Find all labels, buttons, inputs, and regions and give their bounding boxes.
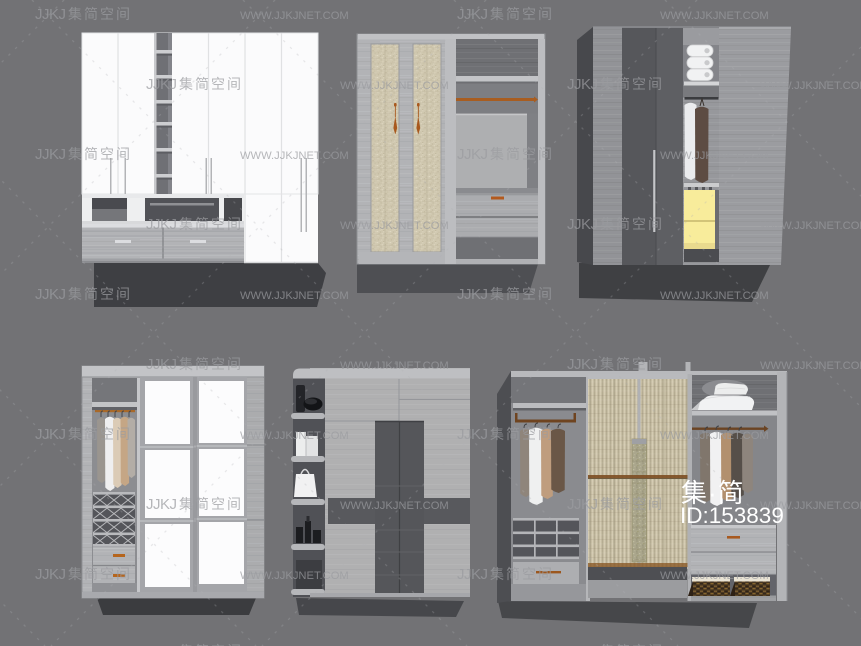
- svg-text:WWW.JJKJNET.COM: WWW.JJKJNET.COM: [340, 220, 449, 232]
- svg-text:JJKJ: JJKJ: [146, 216, 177, 233]
- svg-text:集简空间: 集简空间: [68, 566, 132, 582]
- svg-text:WWW.JJKJNET.COM: WWW.JJKJNET.COM: [240, 10, 349, 22]
- svg-text:集简空间: 集简空间: [490, 426, 554, 442]
- svg-text:JJKJ: JJKJ: [457, 286, 488, 303]
- svg-text:集简空间: 集简空间: [68, 286, 132, 302]
- svg-text:JJKJ: JJKJ: [457, 426, 488, 443]
- svg-text:WWW.JJKJNET.COM: WWW.JJKJNET.COM: [340, 500, 449, 512]
- svg-text:集简空间: 集简空间: [490, 6, 554, 22]
- svg-text:WWW.JJKJNET.COM: WWW.JJKJNET.COM: [660, 570, 769, 582]
- svg-text:JJKJ: JJKJ: [567, 76, 598, 93]
- svg-text:WWW.JJKJNET.COM: WWW.JJKJNET.COM: [240, 290, 349, 302]
- svg-text:ID:153839: ID:153839: [680, 503, 784, 528]
- svg-text:WWW.JJKJNET.COM: WWW.JJKJNET.COM: [660, 430, 769, 442]
- svg-text:JJKJ: JJKJ: [457, 566, 488, 583]
- svg-text:集简空间: 集简空间: [490, 566, 554, 582]
- svg-text:JJKJ: JJKJ: [35, 426, 66, 443]
- svg-text:集简空间: 集简空间: [490, 286, 554, 302]
- svg-text:JJKJ: JJKJ: [457, 6, 488, 23]
- svg-text:WWW.JJKJNET.COM: WWW.JJKJNET.COM: [240, 150, 349, 162]
- svg-text:WWW.JJKJNET.COM: WWW.JJKJNET.COM: [760, 220, 861, 232]
- svg-text:JJKJ: JJKJ: [35, 146, 66, 163]
- svg-text:集简空间: 集简空间: [179, 356, 243, 372]
- svg-text:JJKJ: JJKJ: [567, 216, 598, 233]
- svg-text:WWW.JJKJNET.COM: WWW.JJKJNET.COM: [760, 80, 861, 92]
- svg-text:集简空间: 集简空间: [68, 146, 132, 162]
- svg-text:集简空间: 集简空间: [68, 6, 132, 22]
- svg-text:JJKJ: JJKJ: [457, 146, 488, 163]
- svg-text:WWW.JJKJNET.COM: WWW.JJKJNET.COM: [760, 360, 861, 372]
- svg-text:集简空间: 集简空间: [179, 496, 243, 512]
- svg-text:JJKJ: JJKJ: [35, 566, 66, 583]
- svg-text:WWW.JJKJNET.COM: WWW.JJKJNET.COM: [340, 80, 449, 92]
- svg-text:WWW.JJKJNET.COM: WWW.JJKJNET.COM: [240, 430, 349, 442]
- svg-text:集简空间: 集简空间: [179, 76, 243, 92]
- svg-text:JJKJ: JJKJ: [146, 356, 177, 373]
- svg-text:JJKJ: JJKJ: [567, 496, 598, 513]
- svg-text:JJKJ: JJKJ: [567, 356, 598, 373]
- svg-text:集简空间: 集简空间: [600, 496, 664, 512]
- svg-text:集简空间: 集简空间: [600, 356, 664, 372]
- svg-text:JJKJ: JJKJ: [35, 286, 66, 303]
- svg-text:WWW.JJKJNET.COM: WWW.JJKJNET.COM: [660, 10, 769, 22]
- svg-text:JJKJ: JJKJ: [35, 6, 66, 23]
- svg-text:集简空间: 集简空间: [490, 146, 554, 162]
- svg-text:集简空间: 集简空间: [68, 426, 132, 442]
- svg-text:集简空间: 集简空间: [179, 216, 243, 232]
- svg-text:JJKJ: JJKJ: [146, 496, 177, 513]
- svg-text:JJKJ: JJKJ: [146, 76, 177, 93]
- svg-text:集简空间: 集简空间: [600, 216, 664, 232]
- svg-text:WWW.JJKJNET.COM: WWW.JJKJNET.COM: [660, 150, 769, 162]
- svg-text:WWW.JJKJNET.COM: WWW.JJKJNET.COM: [660, 290, 769, 302]
- svg-text:WWW.JJKJNET.COM: WWW.JJKJNET.COM: [340, 360, 449, 372]
- svg-text:WWW.JJKJNET.COM: WWW.JJKJNET.COM: [240, 570, 349, 582]
- svg-text:集简空间: 集简空间: [600, 76, 664, 92]
